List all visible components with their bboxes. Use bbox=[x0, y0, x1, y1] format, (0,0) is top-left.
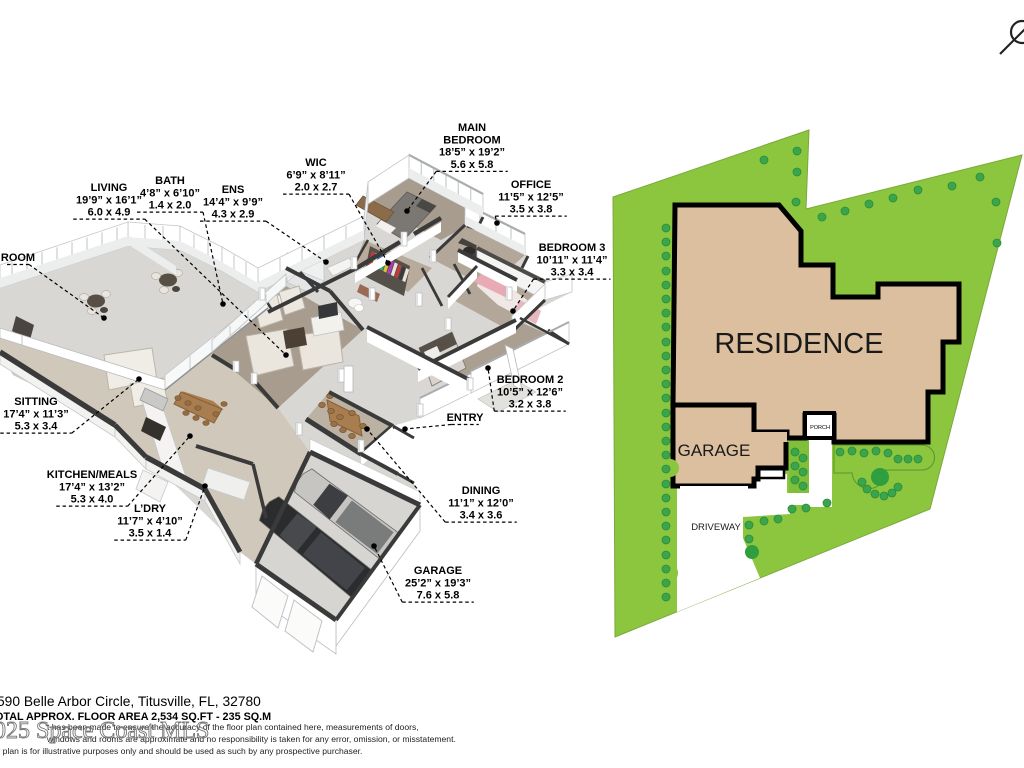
svg-text:17’4” x 13’2”: 17’4” x 13’2” bbox=[59, 481, 125, 493]
svg-text:BEDROOM: BEDROOM bbox=[443, 134, 500, 146]
svg-text:18’5” x 19’2”: 18’5” x 19’2” bbox=[439, 147, 505, 159]
svg-text:2.0 x 2.7: 2.0 x 2.7 bbox=[295, 182, 338, 194]
svg-text:3.3 x 3.4: 3.3 x 3.4 bbox=[551, 267, 595, 279]
svg-text:MAIN: MAIN bbox=[458, 122, 486, 134]
svg-text:3.2 x 3.8: 3.2 x 3.8 bbox=[509, 399, 552, 411]
svg-text:DRIVEWAY: DRIVEWAY bbox=[691, 522, 741, 533]
svg-text:LIVING: LIVING bbox=[91, 182, 128, 194]
svg-text:KITCHEN/MEALS: KITCHEN/MEALS bbox=[47, 469, 137, 481]
svg-text:19’9” x 16’1”: 19’9” x 16’1” bbox=[76, 194, 142, 206]
svg-text:3.5 x 3.8: 3.5 x 3.8 bbox=[510, 204, 553, 216]
svg-text:17’4” x 11’3”: 17’4” x 11’3” bbox=[3, 408, 68, 420]
svg-text:BATH: BATH bbox=[155, 175, 185, 187]
svg-text:3.5 x 1.4: 3.5 x 1.4 bbox=[129, 528, 173, 540]
svg-text:BEDROOM 2: BEDROOM 2 bbox=[497, 374, 564, 386]
svg-text:BEDROOM 3: BEDROOM 3 bbox=[539, 242, 606, 254]
svg-text:1.4 x 2.0: 1.4 x 2.0 bbox=[149, 200, 192, 212]
svg-text:11’5” x 12’5”: 11’5” x 12’5” bbox=[498, 191, 563, 203]
svg-text:3.4 x 3.6: 3.4 x 3.6 bbox=[460, 510, 503, 522]
svg-text:OFFICE: OFFICE bbox=[511, 179, 551, 191]
svg-text:GARAGE: GARAGE bbox=[414, 565, 462, 577]
svg-text:5.3 x 3.4: 5.3 x 3.4 bbox=[15, 421, 59, 433]
svg-text:WIC: WIC bbox=[305, 157, 326, 169]
svg-text:PORCH: PORCH bbox=[810, 425, 830, 431]
svg-text:11’7” x 4’10”: 11’7” x 4’10” bbox=[117, 515, 182, 527]
svg-text:10’11” x 11’4”: 10’11” x 11’4” bbox=[537, 254, 608, 266]
svg-text:DINING: DINING bbox=[462, 485, 501, 497]
svg-text:4.3 x 2.9: 4.3 x 2.9 bbox=[212, 209, 255, 221]
svg-text:6’9” x 8’11”: 6’9” x 8’11” bbox=[286, 169, 345, 181]
svg-text:5.3 x 4.0: 5.3 x 4.0 bbox=[71, 494, 114, 506]
svg-text:11’1” x 12’0”: 11’1” x 12’0” bbox=[448, 497, 513, 509]
svg-text:L’DRY: L’DRY bbox=[134, 503, 167, 515]
svg-text:590 Belle Arbor Circle, Titusv: 590 Belle Arbor Circle, Titusville, FL, … bbox=[0, 694, 261, 709]
svg-text:6.0 x 4.9: 6.0 x 4.9 bbox=[88, 207, 131, 219]
svg-text:ROOM: ROOM bbox=[1, 252, 35, 264]
svg-text:025 Space Coast MLS: 025 Space Coast MLS bbox=[0, 718, 209, 744]
svg-text:4’8” x 6’10”: 4’8” x 6’10” bbox=[140, 187, 200, 199]
svg-text:25’2” x 19’3”: 25’2” x 19’3” bbox=[405, 577, 471, 589]
svg-text:s plan is for illustrative pur: s plan is for illustrative purposes only… bbox=[0, 746, 362, 756]
svg-text:SITTING: SITTING bbox=[14, 396, 57, 408]
svg-text:10’5” x 12’6”: 10’5” x 12’6” bbox=[497, 386, 563, 398]
svg-text:ENTRY: ENTRY bbox=[447, 412, 485, 424]
svg-text:7.6 x 5.8: 7.6 x 5.8 bbox=[417, 590, 460, 602]
svg-text:5.6 x 5.8: 5.6 x 5.8 bbox=[451, 159, 494, 171]
svg-text:ENS: ENS bbox=[222, 184, 245, 196]
svg-text:GARAGE: GARAGE bbox=[678, 441, 751, 460]
svg-text:14’4” x 9’9”: 14’4” x 9’9” bbox=[203, 196, 263, 208]
svg-text:RESIDENCE: RESIDENCE bbox=[714, 328, 883, 360]
